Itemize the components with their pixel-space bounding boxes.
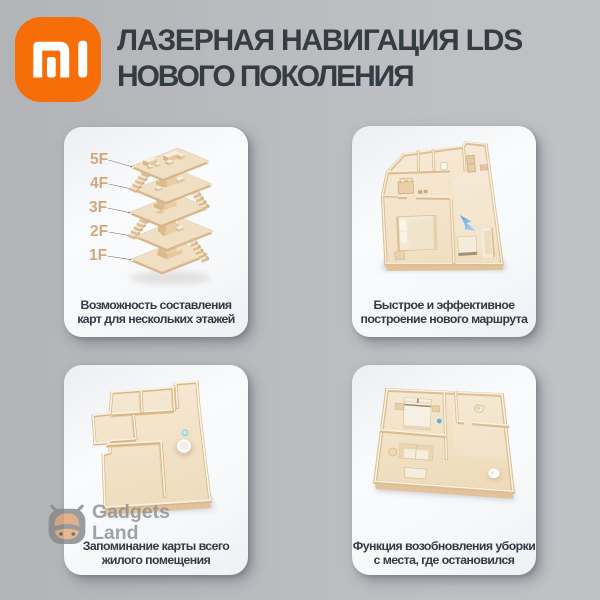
svg-text:5F: 5F [90, 151, 108, 168]
svg-text:4F: 4F [90, 175, 108, 192]
svg-text:1F: 1F [89, 247, 107, 264]
svg-text:2F: 2F [90, 223, 108, 240]
svg-text:3F: 3F [89, 199, 107, 216]
